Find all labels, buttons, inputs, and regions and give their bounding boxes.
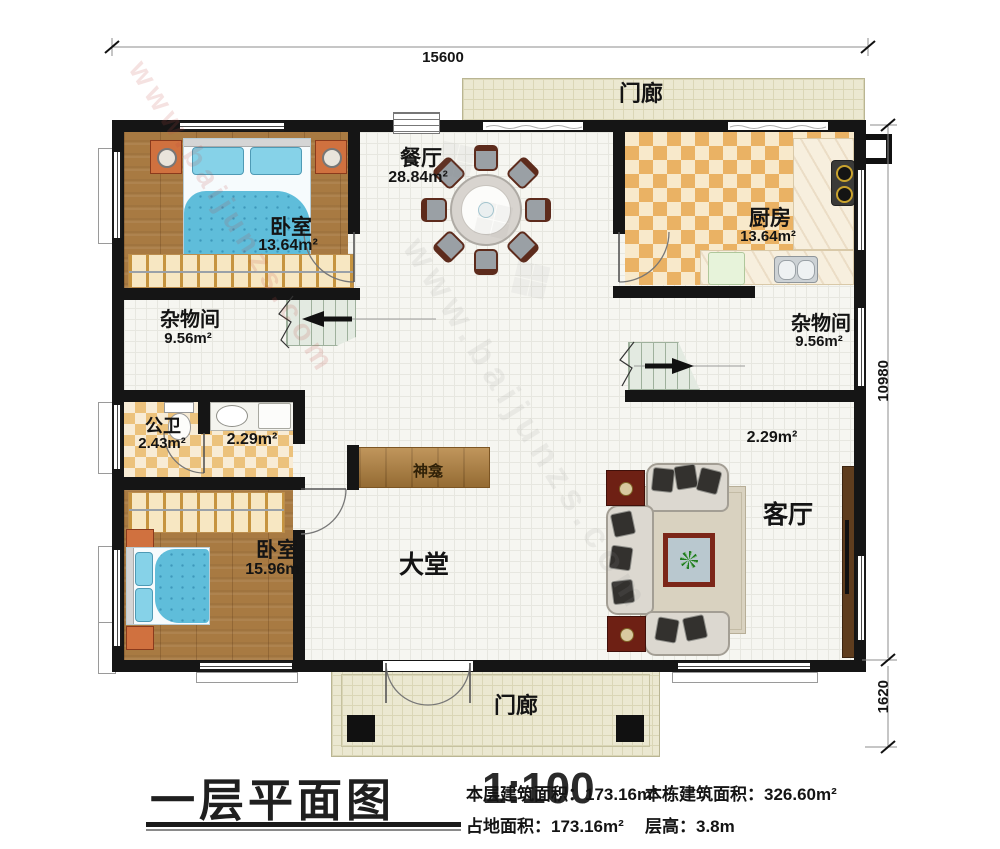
kitchen-sink	[774, 256, 818, 283]
porch-column-left	[347, 715, 375, 742]
stat-land-area: 占地面积：173.16m²	[466, 812, 624, 837]
window	[180, 121, 284, 131]
burner	[836, 165, 853, 182]
dining-chair	[421, 198, 447, 222]
sink-bowl	[797, 260, 815, 280]
window	[112, 405, 122, 469]
wall-shrine-stub	[347, 445, 359, 490]
refrigerator	[708, 252, 745, 285]
opening-porch-kitchen	[728, 122, 828, 130]
room-label-dining: 餐厅	[400, 148, 442, 170]
dining-chair	[474, 249, 498, 275]
nightstand	[150, 140, 182, 174]
dining-chair	[474, 145, 498, 171]
wall-storage-right-bottom	[625, 390, 854, 402]
pillow	[250, 147, 302, 175]
coffee-table	[663, 533, 715, 587]
wall-bath-bottom	[112, 477, 305, 490]
room-area-bathroom: 2.43m²	[138, 436, 186, 452]
window	[856, 170, 866, 250]
pillow	[135, 588, 153, 622]
room-area-storage-left: 9.56m²	[164, 331, 212, 347]
bed-bottom	[126, 547, 210, 625]
stat-building-area: 本栋建筑面积：326.60m²	[645, 780, 837, 805]
room-label-storage-right: 杂物间	[791, 314, 851, 335]
room-label-bathroom: 公卫	[145, 417, 181, 436]
wall-kitchen-left	[613, 132, 625, 234]
table-ornament	[619, 482, 633, 496]
porch-column-right	[616, 715, 644, 742]
bed-headboard	[127, 548, 134, 624]
room-label-bedroom-top: 卧室	[270, 217, 312, 239]
label-shrine: 神龛	[413, 464, 443, 480]
room-area-bedroom-bottom: 15.96m²	[245, 562, 305, 579]
floor-plan-canvas: 15600 10980 1620 门廊 餐厅 28.84m² 厨房 13.64m…	[0, 0, 1000, 849]
stat-floor-height: 层高：3.8m	[645, 812, 735, 837]
room-label-porch-top: 门廊	[619, 82, 663, 105]
room-area-kitchen: 13.64m²	[740, 229, 796, 245]
room-area-storage-right: 9.56m²	[795, 334, 843, 350]
dimension-width-label: 15600	[422, 50, 464, 66]
dimension-height-label: 10980	[876, 360, 892, 402]
room-label-hall: 大堂	[399, 552, 449, 578]
plan-title: 一层平面图	[150, 764, 395, 829]
nightstand	[126, 626, 154, 650]
side-table	[607, 616, 646, 652]
staircase-left	[286, 296, 356, 346]
table-ornament	[620, 628, 634, 642]
wall-corridor-left	[112, 390, 305, 402]
chimney-flue	[866, 134, 892, 164]
window	[856, 308, 866, 386]
sofa-cushion	[682, 614, 709, 642]
room-label-storage-left: 杂物间	[160, 310, 220, 331]
bed-blanket	[155, 549, 209, 623]
sofa-cushion	[673, 463, 698, 490]
entry-steps	[393, 112, 440, 134]
wall-bedroom-top-bottom	[112, 288, 360, 300]
wall-bedroom-top-right	[348, 132, 360, 234]
sink-bowl	[778, 260, 796, 280]
room-area-dining: 28.84m²	[388, 170, 448, 187]
dining-chair	[525, 198, 551, 222]
dining-table-center	[478, 202, 494, 218]
sofa-cushion	[610, 510, 637, 538]
burner	[836, 186, 853, 203]
window-sill	[196, 672, 298, 683]
toilet-tank	[164, 402, 194, 413]
room-label-bedroom-bottom: 卧室	[256, 540, 298, 562]
window-sill	[672, 672, 818, 683]
room-label-porch-bottom: 门廊	[494, 694, 538, 717]
wardrobe-top-bedroom	[128, 254, 354, 288]
room-area-washroom: 2.29m²	[227, 432, 278, 449]
side-table	[606, 470, 645, 506]
lamp	[157, 148, 177, 168]
window	[112, 550, 122, 646]
bed-headboard	[184, 139, 310, 147]
wall-kitchen-bottom	[613, 286, 755, 298]
stove	[831, 160, 855, 206]
sofa-cushion	[651, 467, 675, 493]
window	[856, 556, 866, 640]
nightstand	[315, 140, 347, 174]
wardrobe-bottom-bedroom	[128, 492, 285, 533]
title-underline-thick	[146, 822, 461, 827]
potted-plant	[680, 551, 698, 569]
stat-floor-area: 本层建筑面积：173.16m²	[466, 780, 658, 805]
title-underline-thin	[146, 829, 461, 831]
window	[678, 661, 810, 671]
washbasin	[216, 405, 248, 427]
room-label-kitchen: 厨房	[749, 208, 791, 230]
opening-porch-dining	[483, 122, 583, 130]
window	[200, 661, 292, 671]
pillow	[192, 147, 244, 175]
sofa-cushion	[654, 616, 680, 643]
room-area-corner-nook: 2.29m²	[747, 430, 798, 447]
dimension-porch-label: 1620	[876, 680, 892, 713]
lamp	[322, 148, 342, 168]
sofa-cushion	[608, 545, 633, 572]
wall-washroom-right	[293, 402, 305, 444]
wall-bath-stub	[198, 402, 210, 434]
room-area-bedroom-top: 13.64m²	[258, 238, 318, 255]
window	[112, 152, 122, 238]
main-door-opening	[383, 661, 473, 671]
tv-screen	[845, 520, 849, 594]
room-label-living: 客厅	[763, 502, 813, 528]
pillow	[135, 552, 153, 586]
sofa-cushion	[611, 579, 636, 606]
washing-machine	[258, 403, 291, 429]
